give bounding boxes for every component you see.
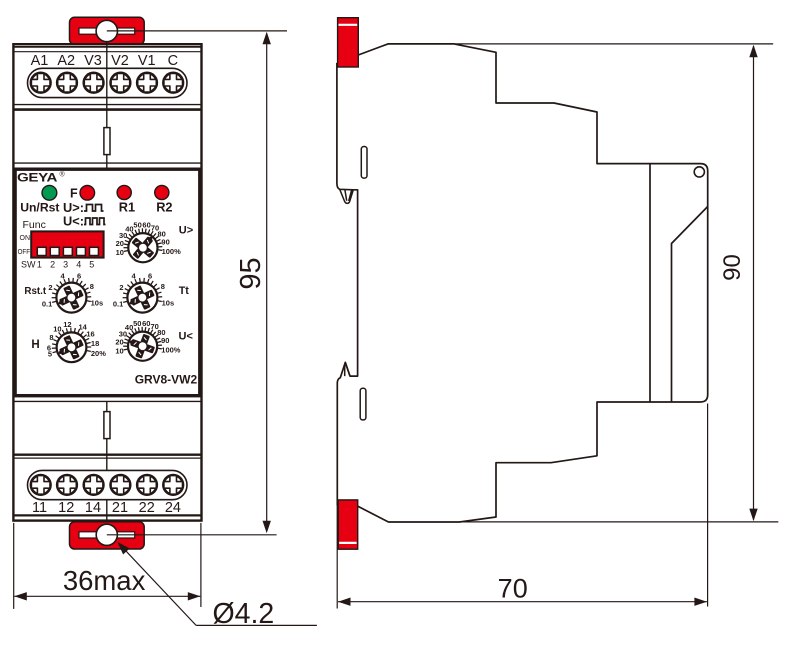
svg-text:R1: R1 [119,200,135,215]
svg-text:12: 12 [58,500,74,516]
svg-text:10s: 10s [162,299,175,308]
svg-text:U>: U> [179,225,193,237]
svg-text:3: 3 [63,259,68,269]
svg-text:90: 90 [161,336,169,345]
svg-text:2: 2 [48,283,52,292]
svg-text:24: 24 [165,500,181,516]
svg-text:10s: 10s [91,299,104,308]
svg-text:C: C [168,53,178,69]
svg-text:SW: SW [21,259,36,269]
svg-text:F: F [70,186,78,200]
svg-text:R2: R2 [156,200,172,215]
svg-text:16: 16 [86,329,94,338]
svg-text:5: 5 [89,259,94,269]
svg-text:OFF: OFF [18,247,31,256]
svg-text:V2: V2 [111,53,129,69]
svg-text:4: 4 [76,259,81,269]
svg-text:60: 60 [142,319,150,328]
svg-text:U<: U< [179,331,193,343]
svg-text:Func: Func [23,219,46,231]
svg-text:1: 1 [37,259,42,269]
svg-text:V3: V3 [84,53,102,69]
svg-text:100%: 100% [162,247,182,256]
svg-text:8: 8 [90,282,94,291]
svg-text:14: 14 [85,500,101,516]
svg-text:95: 95 [235,257,267,289]
svg-text:GEYA: GEYA [17,170,57,184]
svg-text:0.1: 0.1 [42,300,52,309]
svg-text:Rst.t: Rst.t [24,286,47,297]
svg-text:H: H [31,339,39,351]
svg-text:18: 18 [91,339,99,348]
svg-text:0.1: 0.1 [113,300,123,309]
svg-text:20: 20 [115,338,123,347]
svg-text:2: 2 [119,283,123,292]
svg-text:Un/Rst: Un/Rst [20,201,59,215]
svg-text:8: 8 [49,333,53,342]
svg-text:36max: 36max [63,565,146,596]
svg-text:22: 22 [139,500,155,516]
svg-text:60: 60 [142,220,150,229]
svg-text:12: 12 [63,320,71,329]
svg-text:GRV8-VW2: GRV8-VW2 [135,372,198,386]
svg-text:8: 8 [161,282,165,291]
svg-text:40: 40 [125,323,133,332]
svg-text:40: 40 [125,224,133,233]
svg-text:10: 10 [116,248,124,257]
svg-text:10: 10 [115,347,123,356]
svg-text:20%: 20% [91,349,106,358]
svg-text:6: 6 [47,343,51,352]
svg-text:Ø4.2: Ø4.2 [213,598,275,630]
svg-text:ON: ON [20,233,31,242]
svg-text:21: 21 [112,500,128,516]
svg-text:20: 20 [116,239,124,248]
svg-text:10: 10 [53,324,61,333]
svg-text:90: 90 [719,254,746,281]
svg-text:50: 50 [133,221,141,230]
svg-text:70: 70 [498,573,528,603]
svg-text:A1: A1 [31,53,49,69]
svg-text:6: 6 [148,271,152,280]
svg-text:90: 90 [161,238,169,247]
svg-text:V1: V1 [138,53,156,69]
svg-text:100%: 100% [161,346,181,355]
svg-text:Tt: Tt [179,285,190,297]
svg-text:A2: A2 [57,53,75,69]
svg-text:6: 6 [77,271,81,280]
svg-text:U<:: U<: [63,213,84,228]
svg-text:11: 11 [32,500,47,516]
svg-text:50: 50 [133,319,141,328]
svg-text:®: ® [60,171,66,179]
svg-text:2: 2 [50,259,55,269]
